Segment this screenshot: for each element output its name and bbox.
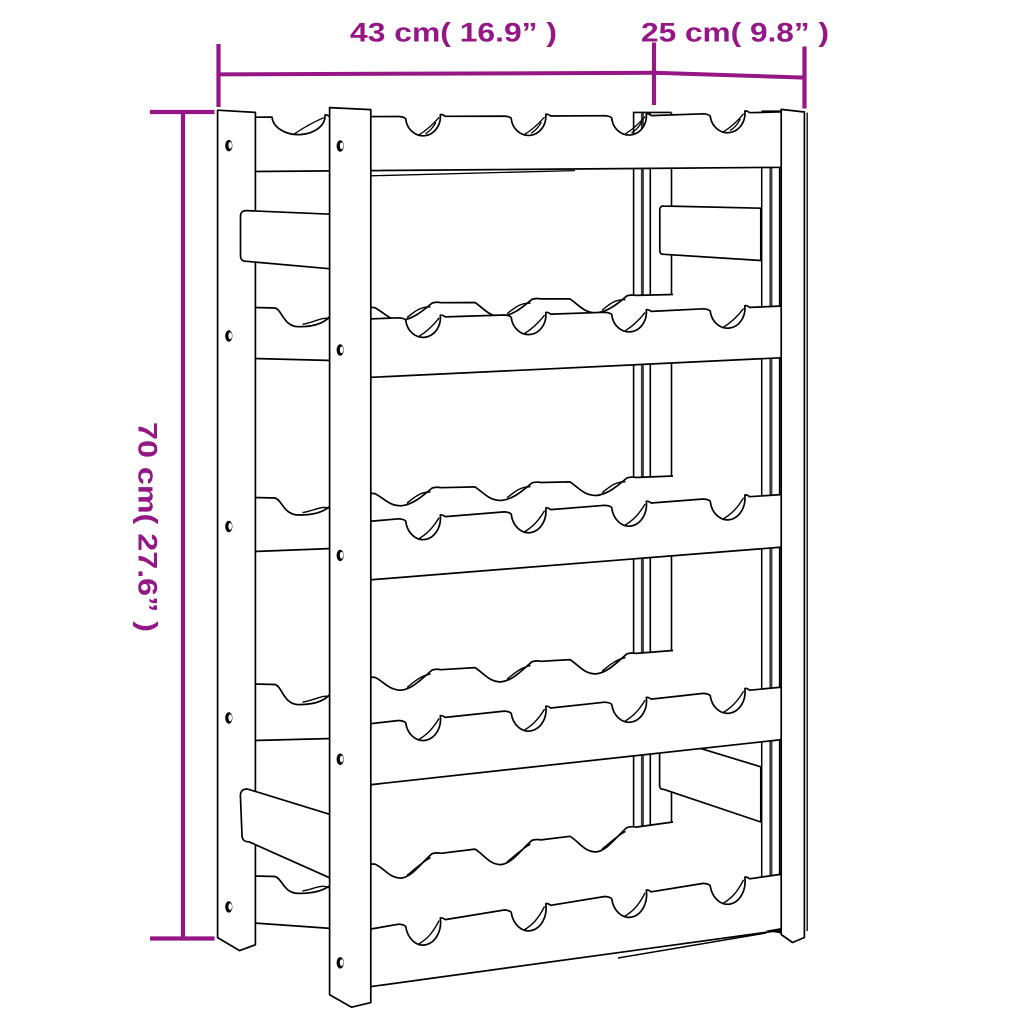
svg-text:25 cm( 9.8” ): 25 cm( 9.8” ) — [641, 18, 829, 48]
svg-text:43 cm( 16.9” ): 43 cm( 16.9” ) — [350, 18, 557, 48]
svg-text:70 cm( 27.6” ): 70 cm( 27.6” ) — [133, 422, 163, 632]
